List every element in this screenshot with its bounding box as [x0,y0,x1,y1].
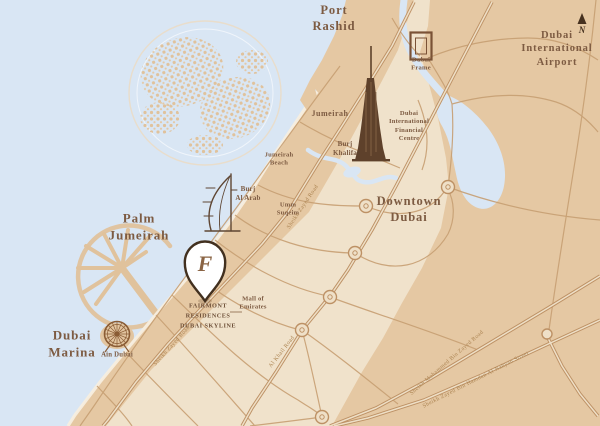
label-jumeirah: Jumeirah [312,109,349,119]
fairmont-monogram: F [198,251,213,277]
label-burj-al-arab: Burj Al Arab [235,185,260,203]
label-ain-dubai: Ain Dubai [101,352,133,361]
label-palm-jumeirah: Palm Jumeirah [109,210,170,243]
label-jumeirah-beach: Jumeirah Beach [265,152,294,169]
label-downtown-dubai: Downtown Dubai [377,193,442,225]
label-dubai-frame: Dubai Frame [411,57,431,74]
label-burj-khalifa: Burj Khalifa [333,140,357,158]
label-dubai-marina: Dubai Marina [48,327,95,360]
label-port-rashid: Port Rashid [313,2,356,34]
dubai-map: Port Rashid Dubai International Airport … [0,0,600,426]
compass-north-label: N [579,25,586,35]
label-difc: Dubai International Financial Centre [389,110,429,144]
label-mall-of-emirates: Mall of Emirates [239,296,266,313]
